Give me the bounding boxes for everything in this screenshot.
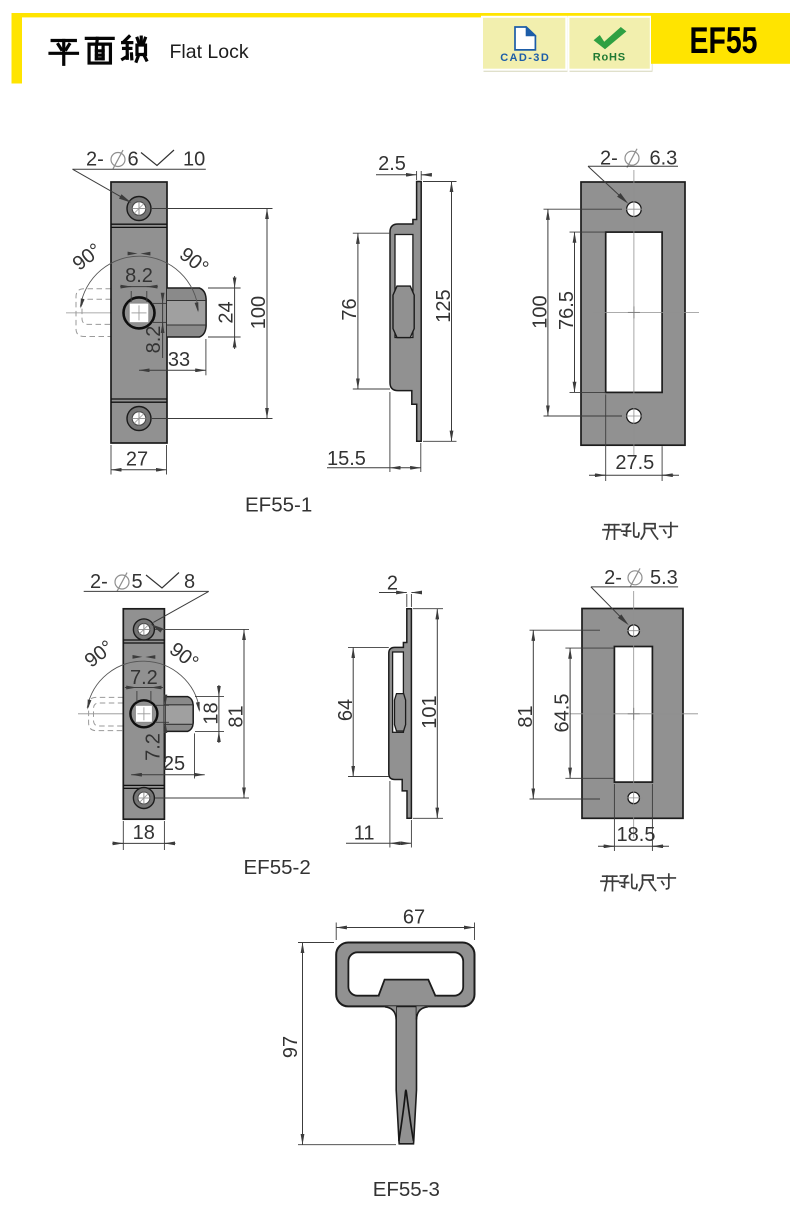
svg-text:18: 18 [200, 702, 222, 724]
svg-text:25: 25 [163, 753, 185, 775]
svg-text:8: 8 [184, 571, 195, 593]
svg-text:27: 27 [126, 449, 148, 471]
svg-text:7.2: 7.2 [143, 733, 165, 761]
svg-text:Flat Lock: Flat Lock [170, 41, 249, 63]
svg-text:97: 97 [280, 1036, 302, 1058]
svg-text:EF55-3: EF55-3 [373, 1178, 440, 1201]
svg-text:64.5: 64.5 [552, 694, 574, 733]
svg-text:100: 100 [529, 295, 551, 328]
svg-text:27.5: 27.5 [615, 452, 654, 474]
svg-text:18.5: 18.5 [617, 824, 656, 846]
svg-text:2.5: 2.5 [378, 153, 406, 175]
svg-text:64: 64 [335, 699, 357, 721]
svg-text:CAD-3D: CAD-3D [500, 52, 550, 64]
svg-text:EF55: EF55 [690, 20, 758, 61]
svg-text:8.2: 8.2 [143, 326, 165, 354]
svg-text:8.2: 8.2 [125, 265, 153, 287]
svg-text:33: 33 [168, 349, 190, 371]
svg-text:2-: 2- [86, 149, 104, 171]
svg-text:76: 76 [339, 298, 361, 320]
svg-text:125: 125 [433, 289, 455, 322]
svg-text:5.3: 5.3 [650, 567, 678, 589]
svg-text:RoHS: RoHS [593, 52, 626, 64]
svg-text:81: 81 [515, 705, 537, 727]
svg-text:EF55-2: EF55-2 [244, 856, 311, 879]
svg-text:15.5: 15.5 [327, 448, 366, 470]
svg-text:67: 67 [403, 907, 425, 929]
svg-text:6: 6 [128, 149, 139, 171]
svg-text:81: 81 [226, 705, 248, 727]
svg-text:11: 11 [354, 823, 375, 845]
svg-text:7.2: 7.2 [130, 667, 158, 689]
svg-text:24: 24 [215, 301, 237, 323]
svg-text:2: 2 [387, 573, 398, 595]
svg-text:10: 10 [183, 149, 205, 171]
svg-text:EF55-1: EF55-1 [245, 494, 312, 517]
svg-text:76.5: 76.5 [556, 291, 578, 330]
svg-text:18: 18 [133, 822, 155, 844]
svg-text:2-: 2- [604, 567, 622, 589]
svg-text:100: 100 [248, 296, 270, 329]
svg-text:101: 101 [419, 695, 441, 728]
svg-text:2-: 2- [90, 571, 108, 593]
svg-text:5: 5 [132, 571, 143, 593]
